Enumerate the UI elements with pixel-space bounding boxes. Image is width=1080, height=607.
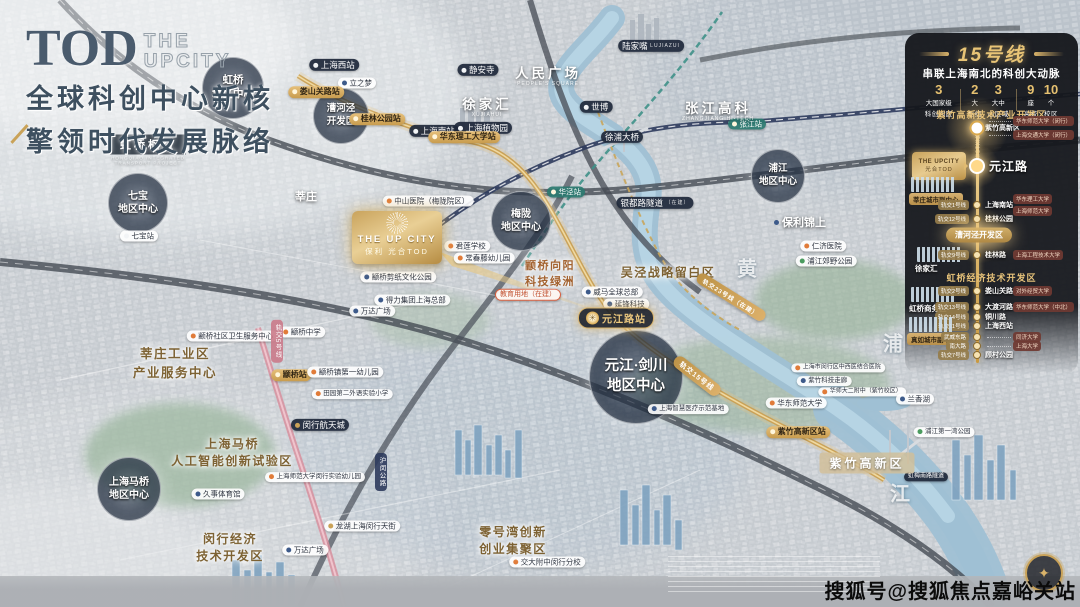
o-icon — [458, 256, 463, 261]
university-tag: 对外经贸大学 — [1013, 286, 1052, 296]
schematic-node-yuanjiang — [969, 158, 985, 174]
map-zonebox-label: 紫竹高新区 — [819, 453, 914, 474]
map-label-text: 万达广场 — [294, 546, 324, 555]
map-poi-pill: 君莲学校 — [444, 241, 490, 252]
schematic-node-station — [973, 313, 981, 321]
hero-upcity-logo: THE UPCITY — [144, 32, 232, 72]
panel-section-title: 虹桥经济技术开发区 — [905, 271, 1078, 284]
m-icon — [584, 105, 589, 110]
map-label-text: 华东理工大学站 — [440, 132, 496, 142]
n-icon — [353, 309, 358, 314]
s-icon — [292, 90, 297, 95]
map-label-text: 世博 — [591, 102, 608, 112]
map-poi-pill: 仁济医院 — [800, 241, 846, 252]
university-tag: 上海大学 — [1013, 341, 1041, 351]
map-area-name: 张江高科 — [682, 102, 754, 117]
map-area-name: 人民广场 — [515, 67, 581, 82]
map-label-text: 颛桥社区卫生服务中心 — [198, 332, 273, 341]
map-station-pill: 娄山关路站 — [288, 86, 344, 98]
map-label-text: 君莲学校 — [456, 242, 486, 251]
o-icon — [191, 334, 196, 339]
sunburst-icon — [386, 212, 408, 234]
schematic-node-station — [973, 287, 981, 295]
yuanjiang-station-callout: ✳ 元江路站 — [578, 308, 654, 329]
map-label-text: 颛桥剪纸文化公园 — [372, 273, 432, 282]
road-vertical-label: 轨交5号线 — [271, 320, 283, 363]
o-icon — [448, 244, 453, 249]
map-label-text: 紫竹高新区站 — [778, 427, 826, 437]
m-icon — [458, 126, 463, 131]
n-icon — [342, 81, 347, 86]
map-poi-pill: 常春藤幼儿园 — [454, 253, 515, 264]
n-icon — [286, 548, 291, 553]
map-label-text: 桂林公园站 — [361, 114, 401, 124]
metro-line-tag: 轨交7号线 — [938, 350, 969, 360]
map-label-text: 仁济医院 — [812, 242, 842, 251]
map-zone-label: 上海马桥 人工智能创新试验区 — [171, 435, 293, 469]
map-label-text: 颛桥站 — [283, 370, 307, 380]
map-poi-pill: 闵行航天城 — [291, 419, 349, 431]
schematic-node-station — [973, 342, 981, 350]
n-icon — [586, 290, 591, 295]
schematic-node-station — [973, 251, 981, 259]
map-label-text: 上海西站 — [321, 60, 355, 70]
map-station-pill: 世博 — [580, 101, 613, 113]
map-area-name: 徐家汇 — [462, 98, 512, 113]
map-poi-pill: 徐浦大桥 — [601, 131, 643, 143]
map-poi-pill: 万达广场 — [282, 545, 328, 556]
watermark: 搜狐号@搜狐焦点嘉峪关站 — [824, 575, 1076, 604]
n-icon — [607, 302, 612, 307]
map-station-pill: 华泾站 — [547, 187, 585, 198]
city-skyline-icon — [911, 177, 955, 192]
map-station-pill: 七宝站 — [120, 231, 158, 242]
n-icon — [801, 378, 806, 383]
city-skyline-icon — [909, 317, 953, 332]
map-poi-pill: 银都路隧道（在建） — [616, 197, 693, 209]
o-icon — [822, 390, 827, 395]
promo-map-image: TOD THE UPCITY 全球科创中心新核 擎领时代发展脉络 虹桥枢纽 HO… — [0, 0, 1080, 607]
district-circle: 浦江 地区中心 — [751, 149, 805, 203]
n-icon — [378, 298, 383, 303]
schematic-station-name: 顾村公园 — [985, 350, 1013, 360]
map-poi-pill: 教育用地（在建） — [495, 289, 561, 301]
hero-title-block: TOD THE UPCITY 全球科创中心新核 擎领时代发展脉络 — [26, 26, 274, 159]
schematic-node-terminus — [970, 121, 985, 136]
panel-stat-number: 3 — [988, 82, 1009, 97]
panel-stat-unit: 个 — [1044, 97, 1058, 107]
schematic-node-station — [973, 351, 981, 359]
map-label-text: 华东师范大学 — [777, 399, 822, 408]
m-icon — [461, 68, 466, 73]
map-poi-pill: 上海智慧医疗示范基地 — [648, 404, 729, 414]
map-poi-pill: 万达广场 — [349, 306, 395, 317]
schematic-station-name: 大渡河路 — [985, 302, 1013, 312]
map-area-label: 徐家汇XUJIAHUI — [462, 98, 512, 118]
project-subtitle: 保利 光合TOD — [365, 246, 429, 257]
map-label-text: 威马全球总部 — [593, 288, 638, 297]
map-poi-pill: 颛桥剪纸文化公园 — [360, 272, 436, 283]
map-station-pill: 静安寺 — [457, 64, 498, 76]
s-icon — [551, 190, 556, 195]
metro-line-tag: 轨交2号线 — [938, 286, 969, 296]
map-label-text: 上海智慧医疗示范基地 — [659, 405, 724, 413]
schematic-node-station — [973, 303, 981, 311]
map-name-label: 莘庄 — [295, 188, 317, 204]
s-icon — [732, 122, 737, 127]
map-poi-pill: 交大附中闵行分校 — [509, 557, 585, 568]
map-label-text: 常春藤幼儿园 — [465, 254, 510, 263]
map-label-text: 颛桥镇第一幼儿园 — [319, 368, 379, 377]
map-poi-pill: 颛桥镇第一幼儿园 — [307, 367, 383, 378]
map-label-text: 银都路隧道 — [620, 198, 663, 208]
river-name-char: 浦 — [883, 328, 903, 357]
schematic-station-name: 桂林路 — [985, 250, 1006, 260]
panel-stat-number: 9 — [1024, 82, 1038, 97]
schematic-node-station — [973, 215, 981, 223]
dotted-leader — [987, 346, 1011, 347]
n-icon — [364, 275, 369, 280]
map-label-text: 陆家嘴 — [622, 41, 648, 51]
map-station-pill: 紫竹高新区站 — [766, 426, 830, 438]
panel-zone-pill: 漕河泾开发区 — [946, 228, 1012, 243]
gr-icon — [918, 429, 923, 434]
map-area-english: PEOPLE'S SQUARE — [515, 82, 581, 88]
university-tag: 上海工程技术大学 — [1013, 250, 1063, 260]
dotted-leader — [989, 121, 1011, 122]
yuanjiang-station-label: 元江路站 — [602, 311, 646, 326]
o-icon — [804, 244, 809, 249]
n-icon — [652, 406, 657, 411]
schematic-station-name: 娄山关路 — [985, 286, 1013, 296]
map-area-english: ZHANGJIANG HI-TECH — [682, 117, 754, 123]
map-label-sub: LUJIAZUI — [650, 43, 680, 49]
panel-stat-top: 10个 — [1044, 82, 1058, 107]
schematic-node-station — [973, 322, 981, 330]
map-label-text: 浦江第一湾公园 — [925, 428, 971, 436]
map-poi-pill: 虹梅南路隧道 — [904, 472, 948, 481]
map-poi-pill: 得力集团上海总部 — [374, 295, 450, 306]
district-circle: 七宝 地区中心 — [108, 173, 168, 233]
project-name: THE UP CITY — [358, 234, 437, 245]
map-label-text: 娄山关路站 — [300, 87, 340, 97]
dotted-leader — [989, 135, 1011, 136]
metro-line-tag: 轨交9号线 — [938, 250, 969, 260]
o-icon — [513, 560, 518, 565]
gd-icon — [328, 524, 333, 529]
district-circle: 上海马桥 地区中心 — [97, 457, 161, 521]
map-poi-pill: 立之梦 — [338, 78, 376, 89]
project-card: THE UP CITY 保利 光合TOD — [352, 211, 442, 264]
map-label-text: 万达广场 — [361, 307, 391, 316]
metro-line-tag: 轨交13号线 — [935, 302, 969, 312]
map-label-text: 兰香湖 — [908, 395, 931, 404]
line15-info-panel: 15号线 串联上海南北的科创大动脉 3大国家级科创园区2大枢纽3大中心区域9座高… — [905, 33, 1078, 374]
map-label-text: 浦江郊野公园 — [807, 257, 852, 266]
panel-stat-unit: 大国家级 — [925, 97, 953, 107]
n-icon — [900, 397, 905, 402]
panel-stat-number: 10 — [1044, 82, 1058, 97]
university-tag: 华东理工大学 — [1013, 194, 1052, 204]
o-icon — [311, 370, 316, 375]
map-poi-pill: 龙湖上海闵行天街 — [324, 521, 400, 532]
map-name-label: 保利锦上 — [774, 214, 826, 230]
hero-headline-1: 全球科创中心新核 — [26, 77, 274, 116]
schematic-node-station — [973, 201, 981, 209]
map-label-text: 上海市闵行区中西医结合医院 — [803, 364, 881, 371]
map-area-label: 张江高科ZHANGJIANG HI-TECH — [682, 102, 754, 122]
map-station-pill: 华东理工大学站 — [428, 131, 500, 143]
s-icon — [353, 117, 358, 122]
map-poi-pill: 颛桥中学 — [279, 327, 325, 338]
panel-stat-top: 9座 — [1024, 82, 1038, 107]
gr-icon — [800, 259, 805, 264]
map-label-text: 保利锦上 — [782, 214, 826, 230]
map-label-text: 久事体育馆 — [203, 490, 241, 499]
map-label-text: 虹梅南路隧道 — [908, 473, 944, 480]
university-tag: 华东师范大学（中北） — [1013, 302, 1074, 312]
map-label-text: 莘庄 — [295, 188, 317, 204]
map-poi-pill: 威马全球总部 — [582, 287, 643, 298]
map-poi-pill: 陆家嘴LUJIAZUI — [618, 40, 684, 52]
map-label-text: 静安寺 — [469, 65, 495, 75]
o-icon — [795, 366, 800, 371]
o-icon — [387, 199, 392, 204]
map-area-label: 人民广场PEOPLE'S SQUARE — [515, 67, 581, 87]
map-label-text: 得力集团上海总部 — [386, 296, 446, 305]
map-area-english: XUJIAHUI — [462, 113, 512, 119]
map-label-text: 徐浦大桥 — [605, 132, 639, 142]
map-poi-pill: 上海市闵行区中西医结合医院 — [791, 363, 885, 372]
map-label-text: 紫竹科技走廊 — [808, 377, 847, 385]
map-poi-pill: 颛桥社区卫生服务中心 — [187, 331, 278, 342]
panel-stat-top: 3大国家级 — [925, 82, 953, 107]
map-poi-pill: 华师大二附中（紫竹校区） — [818, 387, 906, 396]
schematic-node-station — [973, 333, 981, 341]
map-zone-label: 颛桥向阳 科技绿洲 — [525, 257, 575, 289]
map-poi-pill: 浦江郊野公园 — [796, 256, 857, 267]
map-label-text: 上海师范大学闵行实验幼儿园 — [277, 473, 362, 481]
map-zone-label: 莘庄工业区 产业服务中心 — [133, 343, 217, 381]
map-poi-pill: 久事体育馆 — [192, 489, 245, 500]
map-label-text: 中山医院（梅陇院区） — [394, 197, 469, 206]
map-label-text: 交大附中闵行分校 — [521, 558, 581, 567]
map-label-sub: （在建） — [666, 200, 690, 206]
river-name-char: 黄 — [737, 253, 757, 282]
map-label-text: 华泾站 — [559, 188, 582, 197]
panel-stat-number: 3 — [925, 82, 953, 97]
map-station-pill: 上海西站 — [309, 59, 359, 71]
sunburst-station-icon: ✳ — [586, 312, 599, 325]
panel-title: 15号线 — [905, 40, 1078, 67]
map-poi-pill: 田园第二外语实验小学 — [312, 389, 393, 399]
map-label-text: 立之梦 — [350, 79, 373, 88]
map-label-text: 颛桥中学 — [291, 328, 321, 337]
o-icon — [269, 474, 274, 479]
s-icon — [275, 373, 280, 378]
map-station-pill: 桂林公园站 — [349, 113, 405, 125]
s-icon — [432, 135, 437, 140]
hero-headline-2: 擎领时代发展脉络 — [26, 120, 274, 159]
map-label-text: 七宝站 — [132, 232, 155, 241]
hero-tod-logo: TOD — [26, 26, 138, 73]
map-poi-pill: 华东师范大学 — [766, 398, 827, 409]
schematic-station-name-major: 元江路 — [989, 158, 1028, 175]
map-poi-pill: 兰香湖 — [896, 394, 934, 405]
map-label-text: 华师大二附中（紫竹校区） — [830, 388, 902, 395]
map-poi-pill: 中山医院（梅陇院区） — [383, 196, 474, 207]
m-icon — [413, 129, 418, 134]
dotted-leader — [987, 337, 1011, 338]
university-tag: 上海师范大学 — [1013, 206, 1052, 216]
map-zone-label: 零号湾创新 创业集聚区 — [479, 523, 547, 557]
n-icon — [774, 220, 779, 225]
s-icon — [770, 430, 775, 435]
m-icon — [124, 234, 129, 239]
map-label-text: 教育用地（在建） — [500, 291, 556, 299]
n-icon — [196, 492, 201, 497]
panel-stat-number: 2 — [968, 82, 982, 97]
university-tag: 上海交通大学（闵行） — [1013, 130, 1074, 140]
panel-subtitle: 串联上海南北的科创大动脉 — [905, 66, 1078, 81]
o-icon — [770, 401, 775, 406]
panel-card-subtitle: 光合TOD — [925, 165, 953, 173]
schematic-station-name: 上海西站 — [985, 321, 1013, 331]
map-poi-pill: 浦江第一湾公园 — [914, 427, 975, 437]
o-icon — [316, 391, 321, 396]
m-icon — [313, 63, 318, 68]
district-circle: 梅陇 地区中心 — [491, 191, 551, 251]
gd-icon — [295, 423, 300, 428]
map-station-pill: 颛桥站 — [271, 369, 311, 381]
o-icon — [283, 330, 288, 335]
map-label-text: 闵行航天城 — [302, 420, 345, 430]
university-tag: 华东师范大学（闵行） — [1013, 116, 1074, 126]
river-name-char: 江 — [890, 478, 910, 507]
map-zone-label: 闵行经济 技术开发区 — [196, 530, 264, 564]
map-label-text: 田园第二外语实验小学 — [323, 390, 388, 398]
map-poi-pill: 紫竹科技走廊 — [797, 376, 852, 386]
map-poi-pill: 上海师范大学闵行实验幼儿园 — [265, 472, 365, 482]
map-label-text: 龙湖上海闵行天街 — [336, 522, 396, 531]
panel-stat-unit: 座 — [1024, 97, 1038, 107]
road-vertical-label: 沪闵公路 — [375, 453, 387, 491]
